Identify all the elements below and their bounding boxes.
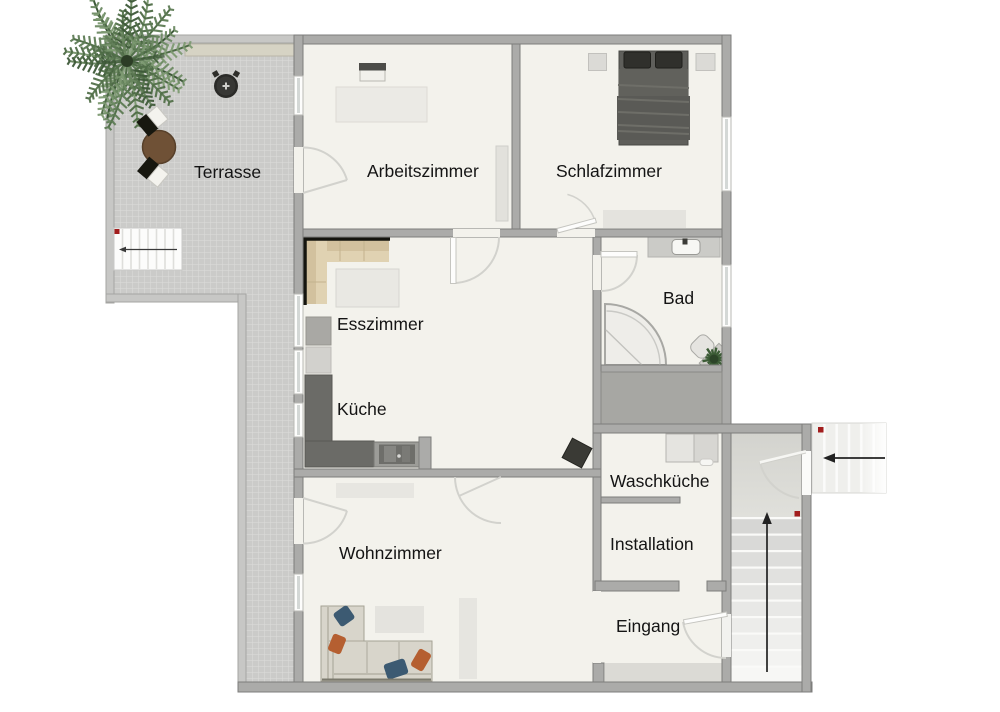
svg-text:Wohnzimmer: Wohnzimmer — [339, 543, 442, 563]
svg-text:Arbeitszimmer: Arbeitszimmer — [367, 161, 479, 181]
svg-text:Installation: Installation — [610, 534, 694, 554]
svg-text:Bad: Bad — [663, 288, 694, 308]
svg-text:Schlafzimmer: Schlafzimmer — [556, 161, 662, 181]
svg-text:Waschküche: Waschküche — [610, 471, 710, 491]
svg-text:Esszimmer: Esszimmer — [337, 314, 424, 334]
svg-text:Eingang: Eingang — [616, 616, 680, 636]
svg-text:Küche: Küche — [337, 399, 387, 419]
svg-text:Terrasse: Terrasse — [194, 162, 261, 182]
